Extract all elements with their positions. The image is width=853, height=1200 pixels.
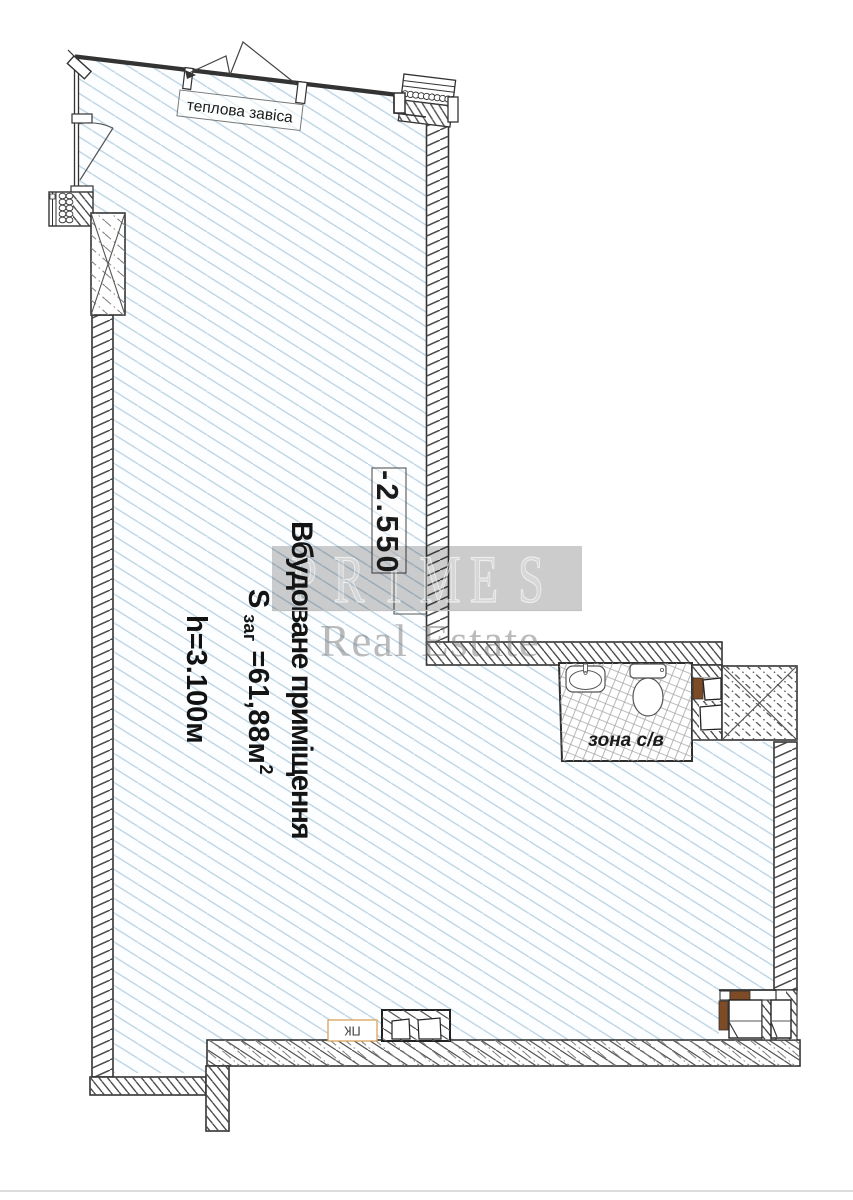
svg-text:M: M <box>419 541 460 617</box>
svg-text:h=3.100м: h=3.100м <box>180 615 212 744</box>
svg-text:R: R <box>334 541 365 617</box>
svg-text:Real Estate: Real Estate <box>320 616 540 666</box>
svg-text:S: S <box>518 541 544 617</box>
svg-text:зона с/в: зона с/в <box>588 730 664 751</box>
svg-text:E: E <box>470 541 498 617</box>
svg-text:ПК: ПК <box>344 1024 361 1038</box>
svg-text:Вбудоване приміщення: Вбудоване приміщення <box>285 521 318 839</box>
svg-text:-2.550: -2.550 <box>370 470 404 576</box>
